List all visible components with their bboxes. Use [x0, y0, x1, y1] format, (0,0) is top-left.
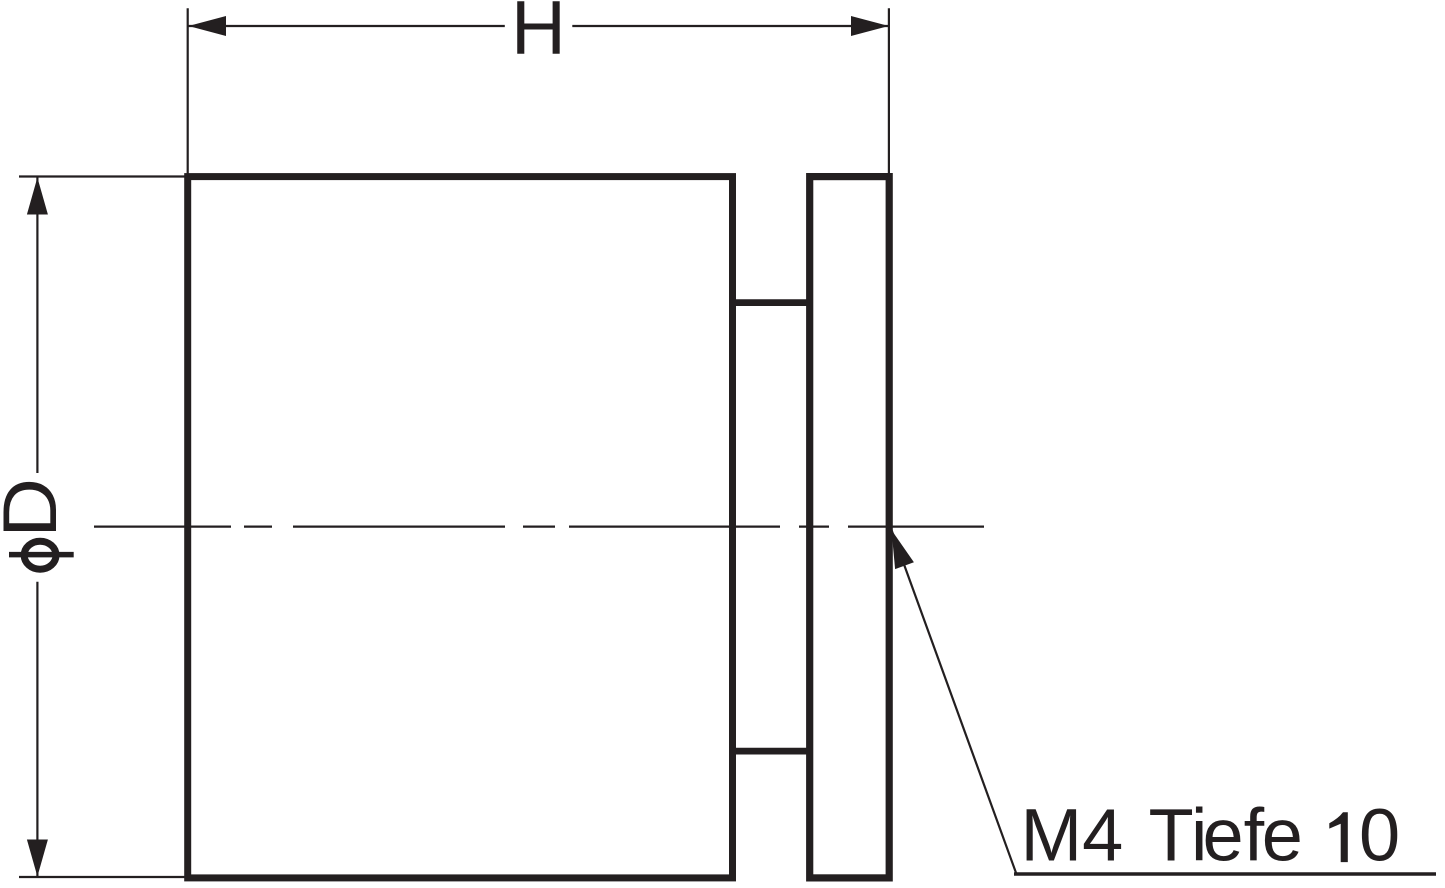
svg-text:e: e: [1262, 793, 1303, 876]
svg-text:0: 0: [1359, 793, 1400, 876]
svg-text:H: H: [511, 0, 566, 71]
svg-text:D: D: [0, 478, 72, 538]
svg-text:Ti: Ti: [1149, 793, 1208, 876]
svg-text:ef: ef: [1203, 793, 1265, 876]
svg-text:M4: M4: [1021, 793, 1124, 876]
